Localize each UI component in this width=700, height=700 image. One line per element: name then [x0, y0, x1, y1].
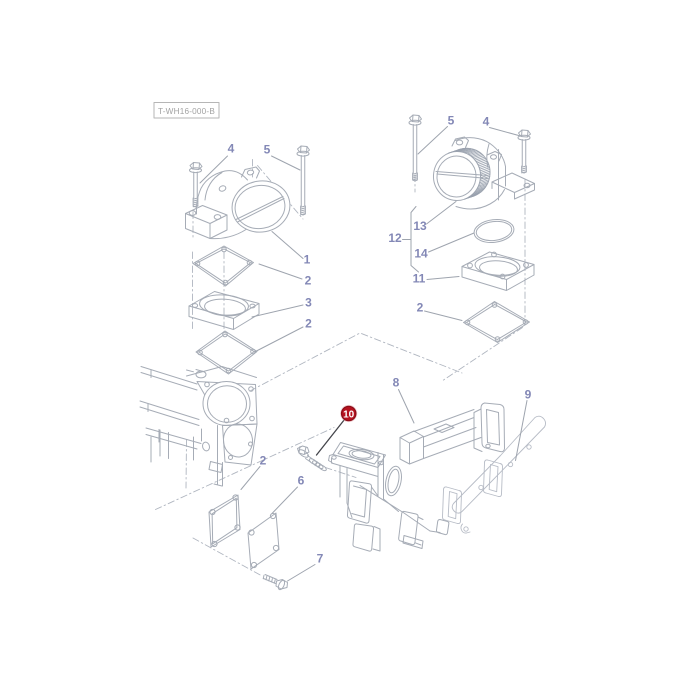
svg-text:2: 2 [305, 317, 312, 331]
svg-text:5: 5 [448, 114, 455, 128]
svg-text:4: 4 [483, 115, 490, 129]
svg-text:2: 2 [260, 454, 267, 468]
svg-text:1: 1 [304, 253, 311, 267]
svg-text:3: 3 [305, 296, 312, 310]
svg-text:6: 6 [298, 474, 305, 488]
svg-text:9: 9 [525, 388, 532, 402]
svg-text:7: 7 [317, 552, 324, 566]
svg-text:13: 13 [413, 219, 427, 233]
svg-text:10: 10 [343, 409, 355, 420]
svg-text:12: 12 [388, 231, 402, 245]
svg-text:T-WH16-000-B: T-WH16-000-B [158, 107, 215, 116]
svg-text:4: 4 [228, 142, 235, 156]
svg-text:14: 14 [414, 247, 428, 261]
svg-text:5: 5 [264, 143, 271, 157]
svg-text:8: 8 [393, 376, 400, 390]
svg-text:2: 2 [417, 301, 424, 315]
svg-text:2: 2 [305, 274, 312, 288]
svg-text:11: 11 [413, 272, 426, 286]
